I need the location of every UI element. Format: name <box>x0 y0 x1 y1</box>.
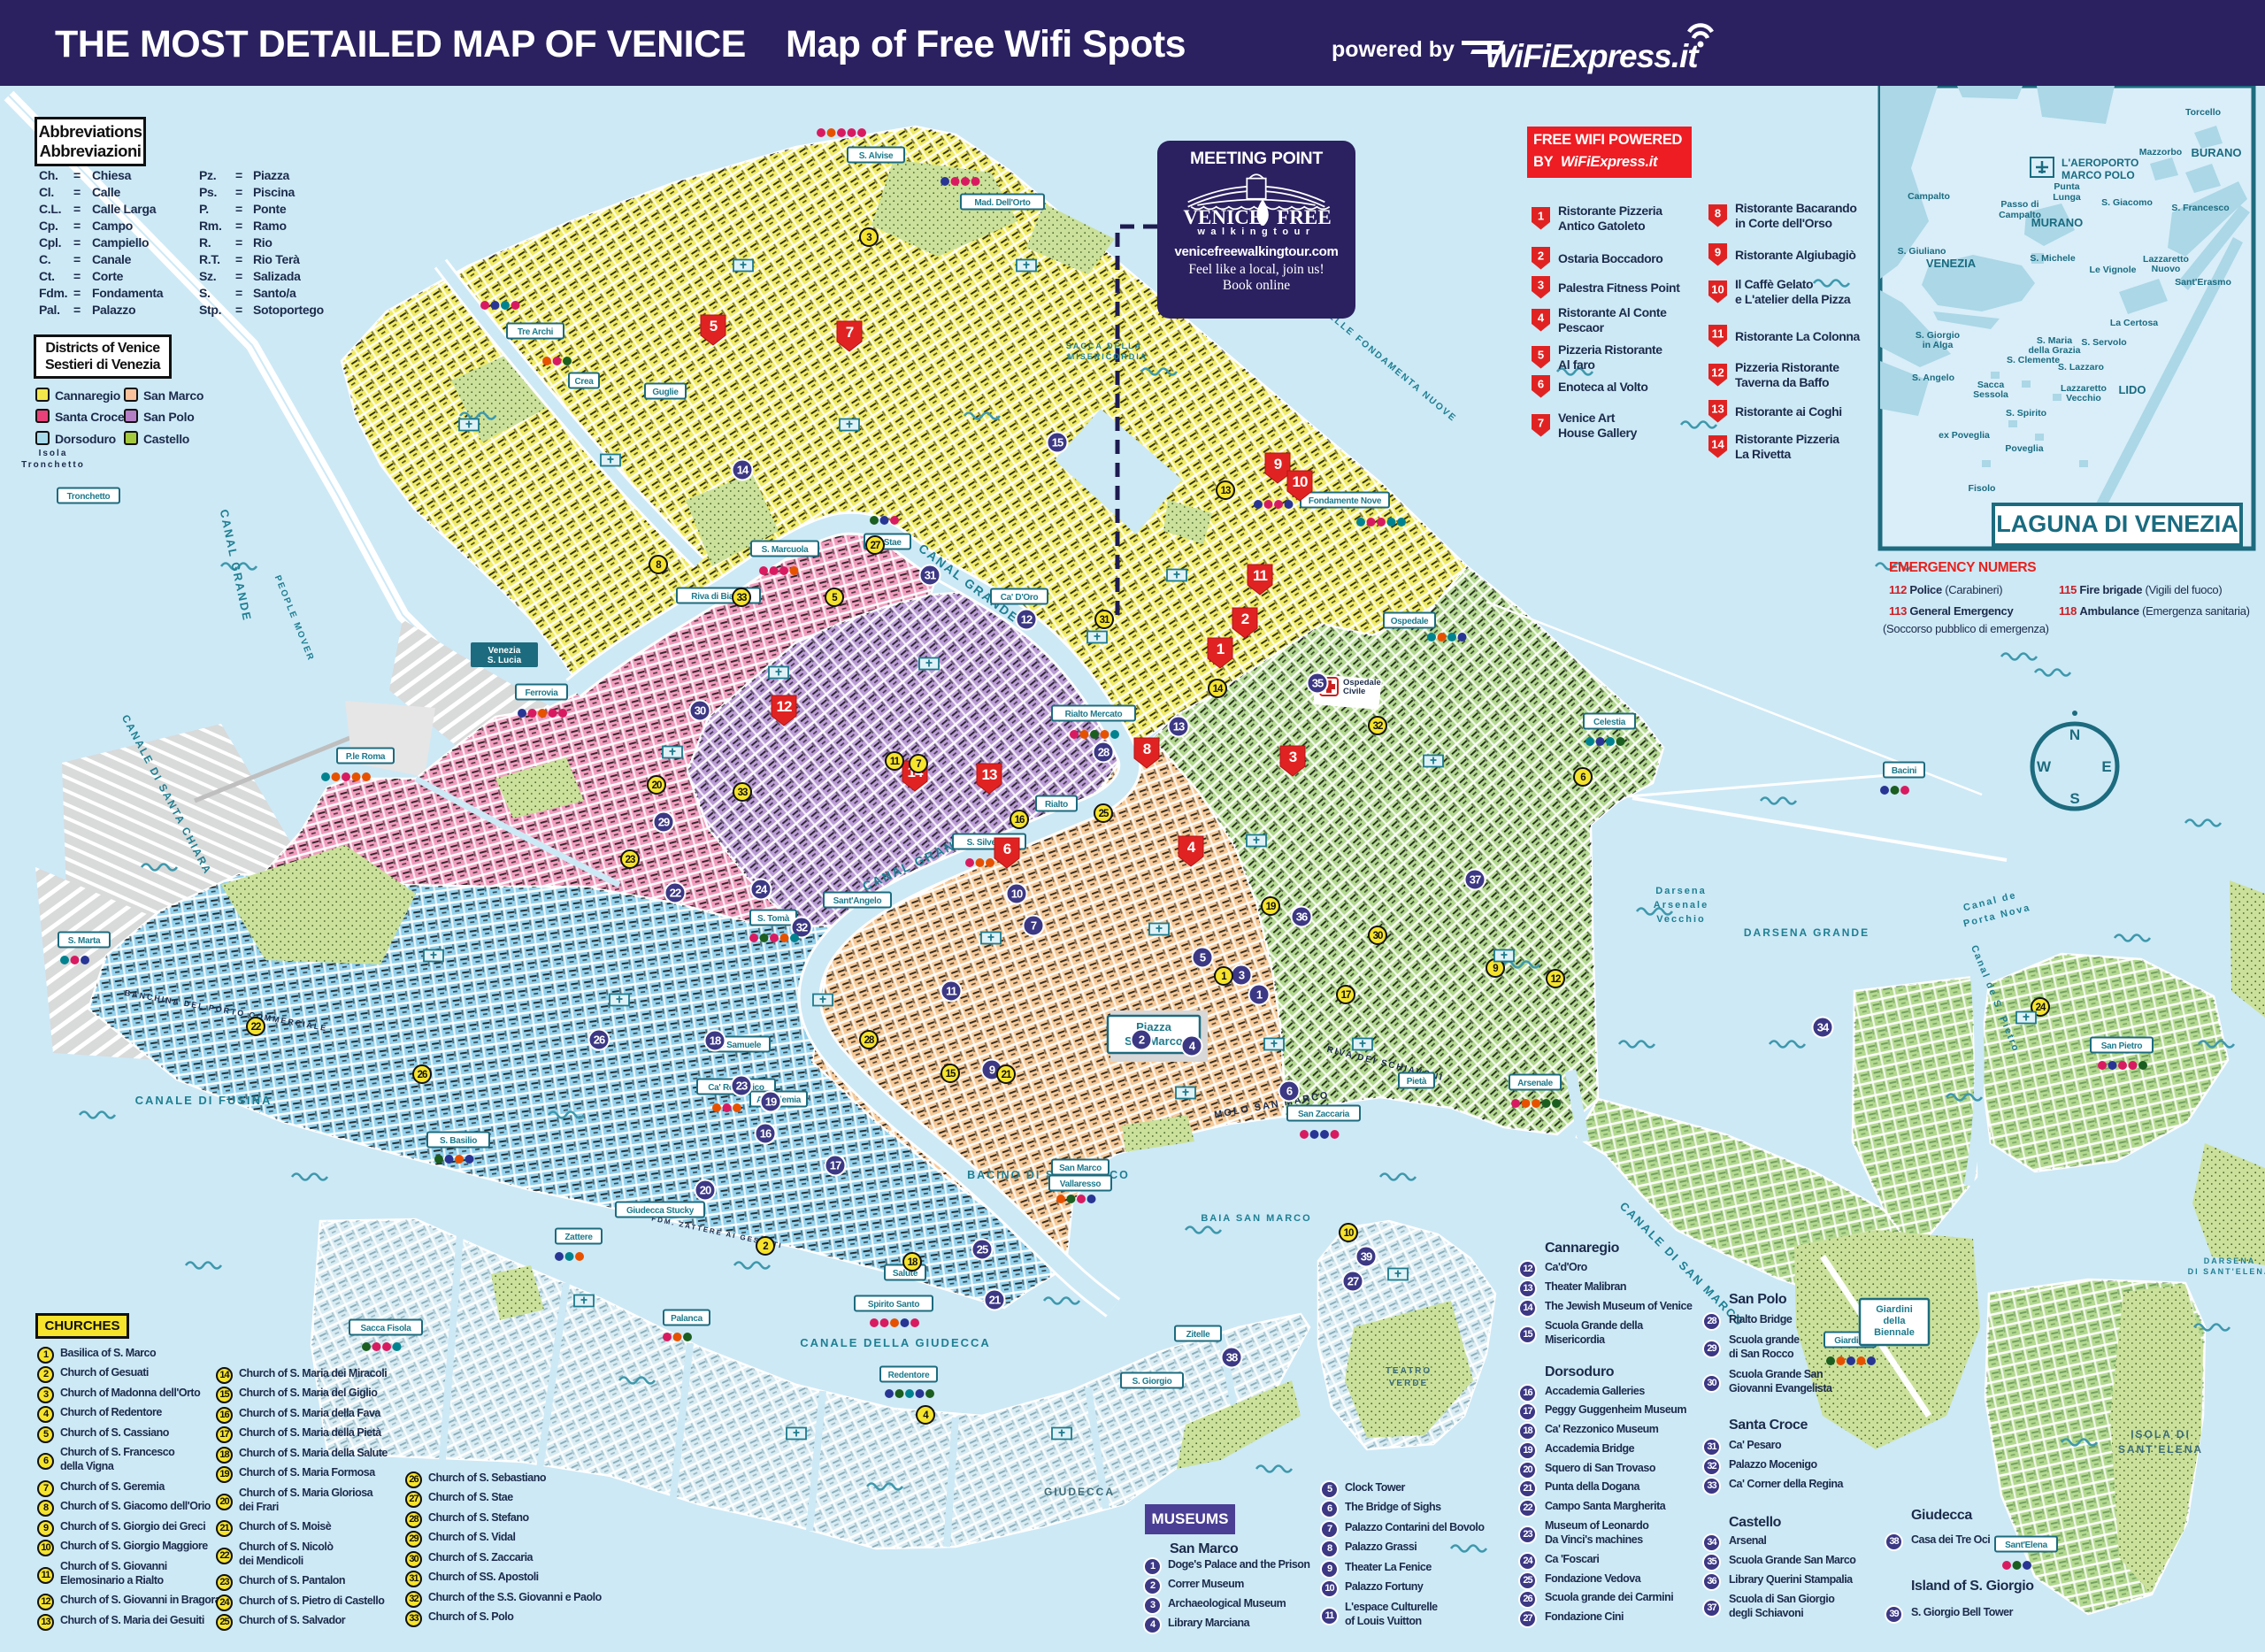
svg-text:38: 38 <box>1226 1351 1238 1364</box>
svg-text:6: 6 <box>1286 1085 1293 1098</box>
svg-text:18: 18 <box>908 1257 918 1268</box>
svg-text:34: 34 <box>1817 1021 1830 1034</box>
svg-text:La Certosa: La Certosa <box>2110 318 2158 328</box>
svg-text:3: 3 <box>1538 279 1544 292</box>
svg-text:Zattere: Zattere <box>564 1233 593 1242</box>
svg-text:7: 7 <box>846 324 854 341</box>
svg-text:12: 12 <box>1551 974 1561 985</box>
svg-text:19: 19 <box>765 1095 777 1109</box>
svg-text:Biennale: Biennale <box>1874 1327 1915 1338</box>
svg-text:28: 28 <box>864 1035 875 1046</box>
svg-text:Campalto: Campalto <box>1908 191 1950 202</box>
svg-text:13: 13 <box>1221 486 1231 496</box>
svg-text:14: 14 <box>1213 684 1224 695</box>
svg-text:MURANO: MURANO <box>2031 216 2084 229</box>
svg-text:22: 22 <box>670 887 681 900</box>
svg-text:12: 12 <box>1711 366 1724 380</box>
svg-text:30: 30 <box>695 704 706 718</box>
svg-text:17: 17 <box>1341 990 1351 1001</box>
svg-text:26: 26 <box>418 1070 427 1080</box>
svg-text:24: 24 <box>756 883 768 896</box>
svg-text:Civile: Civile <box>1343 687 1365 696</box>
svg-text:S. Giuliano: S. Giuliano <box>1898 246 1946 257</box>
svg-text:San Marco: San Marco <box>1059 1164 1102 1173</box>
svg-text:29: 29 <box>658 816 670 829</box>
svg-text:12: 12 <box>1021 613 1033 626</box>
svg-text:5: 5 <box>710 318 718 334</box>
svg-text:21: 21 <box>989 1294 1001 1307</box>
svg-text:Nuovo: Nuovo <box>2152 264 2181 274</box>
svg-text:28: 28 <box>1098 746 1109 759</box>
svg-text:Rialto Mercato: Rialto Mercato <box>1065 710 1123 719</box>
svg-text:Bacini: Bacini <box>1892 766 1917 776</box>
svg-text:S. Michele: S. Michele <box>2030 253 2076 264</box>
svg-text:TEATRO: TEATRO <box>1386 1366 1432 1376</box>
svg-text:11: 11 <box>890 757 901 767</box>
svg-text:S. Tomà: S. Tomà <box>757 914 790 924</box>
svg-text:N: N <box>2069 726 2080 743</box>
svg-text:Sacca Fisola: Sacca Fisola <box>361 1324 412 1333</box>
svg-text:S. Angelo: S. Angelo <box>1912 373 1954 383</box>
svg-text:San Zaccaria: San Zaccaria <box>1298 1110 1350 1119</box>
svg-text:21: 21 <box>1002 1070 1012 1080</box>
svg-text:VERDE: VERDE <box>1389 1379 1428 1388</box>
svg-text:13: 13 <box>1173 720 1185 734</box>
svg-text:7: 7 <box>916 759 921 770</box>
svg-text:2: 2 <box>1241 611 1249 627</box>
svg-text:GIUDECCA: GIUDECCA <box>1044 1486 1115 1498</box>
svg-text:S. Giorgio: S. Giorgio <box>1132 1377 1172 1387</box>
svg-text:WiFiExpress.it: WiFiExpress.it <box>1485 38 1700 74</box>
svg-text:23: 23 <box>626 855 635 865</box>
svg-text:30: 30 <box>1373 931 1383 941</box>
svg-text:Sessola: Sessola <box>1973 389 2008 400</box>
svg-text:19: 19 <box>1266 902 1276 912</box>
svg-text:37: 37 <box>1470 873 1481 887</box>
svg-text:S: S <box>2069 790 2079 807</box>
svg-text:12: 12 <box>777 698 792 715</box>
svg-text:31: 31 <box>1100 615 1110 626</box>
svg-text:9: 9 <box>1493 964 1498 974</box>
svg-text:Sant'Elena: Sant'Elena <box>2005 1541 2047 1550</box>
svg-text:20: 20 <box>700 1184 711 1197</box>
svg-text:Tronchetto: Tronchetto <box>67 492 111 502</box>
svg-text:11: 11 <box>1712 327 1724 341</box>
svg-text:S. Servolo: S. Servolo <box>2081 337 2126 348</box>
svg-text:8: 8 <box>1715 207 1721 220</box>
svg-text:Ospedale: Ospedale <box>1391 617 1429 626</box>
svg-text:Vecchio: Vecchio <box>2066 393 2101 403</box>
svg-text:Spirito Santo: Spirito Santo <box>868 1300 920 1310</box>
svg-text:VENICE: VENICE <box>1183 205 1263 226</box>
svg-text:S. Lazzaro: S. Lazzaro <box>2058 362 2104 373</box>
svg-text:16: 16 <box>760 1127 772 1141</box>
svg-text:1: 1 <box>1256 988 1263 1002</box>
svg-text:ex Poveglia: ex Poveglia <box>1939 430 1990 441</box>
svg-text:1: 1 <box>1217 641 1225 657</box>
svg-text:P.le Roma: P.le Roma <box>346 752 386 762</box>
svg-text:S. Marta: S. Marta <box>68 936 101 946</box>
svg-text:Palanca: Palanca <box>671 1314 703 1324</box>
svg-text:36: 36 <box>1296 911 1308 924</box>
svg-text:S. Spirito: S. Spirito <box>2006 408 2046 419</box>
svg-text:35: 35 <box>1312 677 1324 690</box>
svg-text:2: 2 <box>763 1241 768 1252</box>
svg-text:7: 7 <box>1538 417 1544 430</box>
svg-text:31: 31 <box>925 569 936 582</box>
svg-text:Giardini: Giardini <box>1876 1304 1913 1315</box>
svg-text:27: 27 <box>871 541 880 551</box>
svg-text:Ca' D'Oro: Ca' D'Oro <box>1001 593 1039 603</box>
svg-text:Zitelle: Zitelle <box>1186 1330 1211 1340</box>
svg-text:33: 33 <box>737 593 747 603</box>
svg-text:Mad. Dell'Orto: Mad. Dell'Orto <box>974 198 1030 208</box>
svg-text:Torcello: Torcello <box>2185 107 2221 118</box>
svg-text:S. Basilio: S. Basilio <box>440 1136 477 1146</box>
svg-text:6: 6 <box>1538 378 1544 391</box>
svg-text:Guglie: Guglie <box>652 388 679 397</box>
svg-text:S. Clemente: S. Clemente <box>2007 355 2060 365</box>
svg-text:Punta: Punta <box>2054 181 2079 192</box>
svg-text:7: 7 <box>1031 919 1037 933</box>
svg-text:16: 16 <box>1015 815 1025 826</box>
svg-text:Ferrovia: Ferrovia <box>525 688 558 698</box>
svg-text:Darsena: Darsena <box>1655 886 1706 896</box>
svg-text:10: 10 <box>1293 473 1308 490</box>
svg-text:L'AEROPORTO: L'AEROPORTO <box>2062 157 2138 169</box>
svg-text:33: 33 <box>738 788 748 798</box>
svg-text:39: 39 <box>1361 1250 1372 1264</box>
svg-text:8: 8 <box>1143 741 1151 757</box>
svg-text:Lunga: Lunga <box>2053 192 2081 203</box>
svg-text:24: 24 <box>2036 1003 2046 1013</box>
svg-text:ISOLA DI: ISOLA DI <box>2131 1428 2191 1441</box>
svg-text:W: W <box>2037 758 2052 775</box>
svg-text:26: 26 <box>594 1033 605 1047</box>
svg-text:S. Alvise: S. Alvise <box>859 151 894 161</box>
svg-text:23: 23 <box>736 1080 748 1093</box>
svg-text:Le Vignole: Le Vignole <box>2090 265 2137 275</box>
svg-text:MARCO POLO: MARCO POLO <box>2062 169 2135 181</box>
svg-text:Venezia: Venezia <box>488 646 521 656</box>
svg-text:Crea: Crea <box>574 377 594 387</box>
svg-text:32: 32 <box>796 921 808 934</box>
svg-text:Vecchio: Vecchio <box>1656 914 1706 925</box>
svg-text:Arsenale: Arsenale <box>1654 900 1708 911</box>
svg-text:2: 2 <box>1538 250 1544 263</box>
svg-text:Poveglia: Poveglia <box>2005 443 2043 454</box>
svg-text:LAGUNA DI VENEZIA: LAGUNA DI VENEZIA <box>1996 511 2238 537</box>
svg-text:22: 22 <box>251 1022 261 1033</box>
svg-text:Isola: Isola <box>39 449 68 458</box>
svg-text:4: 4 <box>1538 311 1545 325</box>
svg-text:E: E <box>2101 758 2111 775</box>
svg-text:CANALE DI FUSINA: CANALE DI FUSINA <box>135 1094 273 1107</box>
svg-text:15: 15 <box>1052 436 1063 449</box>
svg-text:9: 9 <box>1274 456 1282 473</box>
svg-text:Sant'Angelo: Sant'Angelo <box>833 896 882 906</box>
svg-text:3: 3 <box>866 233 871 243</box>
svg-text:11: 11 <box>946 985 957 998</box>
svg-text:20: 20 <box>652 780 662 791</box>
svg-text:14: 14 <box>737 464 749 477</box>
svg-text:17: 17 <box>830 1159 841 1172</box>
svg-text:Tre Archi: Tre Archi <box>518 327 554 337</box>
svg-text:10: 10 <box>1711 283 1724 296</box>
svg-text:Celestia: Celestia <box>1593 718 1626 727</box>
svg-text:FREE: FREE <box>1277 205 1332 226</box>
svg-text:Passo di: Passo di <box>2000 199 2038 210</box>
svg-text:LIDO: LIDO <box>2118 383 2146 396</box>
svg-text:6: 6 <box>1003 841 1011 857</box>
svg-text:SACCA DELLA: SACCA DELLA <box>1066 342 1142 350</box>
svg-text:San Pietro: San Pietro <box>2101 1041 2143 1051</box>
svg-text:25: 25 <box>977 1243 988 1256</box>
svg-text:S. Francesco: S. Francesco <box>2171 203 2229 213</box>
svg-text:13: 13 <box>982 766 997 783</box>
svg-text:BURANO: BURANO <box>2191 146 2241 159</box>
svg-text:Fondamente Nove: Fondamente Nove <box>1309 496 1382 506</box>
svg-text:11: 11 <box>1253 567 1268 584</box>
svg-text:5: 5 <box>1538 349 1544 362</box>
svg-text:15: 15 <box>946 1069 956 1080</box>
svg-text:Pietà: Pietà <box>1407 1077 1427 1087</box>
svg-text:3: 3 <box>1289 749 1297 765</box>
svg-text:S. Giacomo: S. Giacomo <box>2101 197 2153 208</box>
svg-text:6: 6 <box>1580 772 1585 783</box>
svg-text:14: 14 <box>1711 438 1724 451</box>
svg-text:S. Lucia: S. Lucia <box>488 656 522 665</box>
svg-text:10: 10 <box>1344 1228 1354 1239</box>
svg-text:DI SANT'ELENA: DI SANT'ELENA <box>2188 1267 2265 1276</box>
svg-text:Mazzorbo: Mazzorbo <box>2139 147 2182 158</box>
svg-text:32: 32 <box>1373 721 1383 732</box>
svg-text:27: 27 <box>1347 1275 1359 1288</box>
svg-text:della: della <box>1883 1316 1906 1326</box>
svg-text:DARSENA: DARSENA <box>2204 1256 2256 1265</box>
svg-text:2: 2 <box>1139 1033 1145 1047</box>
svg-text:Tronchetto: Tronchetto <box>21 460 85 470</box>
svg-text:VENEZIA: VENEZIA <box>1926 257 1977 270</box>
svg-text:Redentore: Redentore <box>888 1371 930 1380</box>
svg-text:in Alga: in Alga <box>1923 340 1954 350</box>
svg-text:25: 25 <box>1099 809 1109 819</box>
svg-text:S. Marcuola: S. Marcuola <box>762 545 810 555</box>
svg-text:DARSENA GRANDE: DARSENA GRANDE <box>1744 926 1870 939</box>
svg-text:18: 18 <box>710 1034 721 1048</box>
svg-text:10: 10 <box>1011 887 1023 901</box>
svg-text:9: 9 <box>1715 246 1721 259</box>
svg-text:BAIA SAN MARCO: BAIA SAN MARCO <box>1201 1213 1311 1224</box>
svg-text:MISERICORDIA: MISERICORDIA <box>1068 352 1148 361</box>
svg-text:Sant'Erasmo: Sant'Erasmo <box>2175 277 2231 288</box>
svg-text:3: 3 <box>1239 969 1245 982</box>
svg-text:13: 13 <box>1711 403 1724 416</box>
svg-text:Vallaresso: Vallaresso <box>1060 1179 1102 1189</box>
svg-text:9: 9 <box>989 1064 995 1077</box>
svg-text:5: 5 <box>1200 951 1206 964</box>
svg-text:CANALE DELLA GIUDECCA: CANALE DELLA GIUDECCA <box>800 1336 991 1349</box>
svg-text:Rialto: Rialto <box>1045 800 1068 810</box>
svg-text:Arsenale: Arsenale <box>1517 1079 1554 1088</box>
svg-text:1: 1 <box>1538 210 1544 223</box>
svg-text:Giudecca Stucky: Giudecca Stucky <box>626 1206 695 1216</box>
svg-text:Fisolo: Fisolo <box>1969 483 1996 494</box>
svg-text:SANT'ELENA: SANT'ELENA <box>2118 1443 2203 1456</box>
